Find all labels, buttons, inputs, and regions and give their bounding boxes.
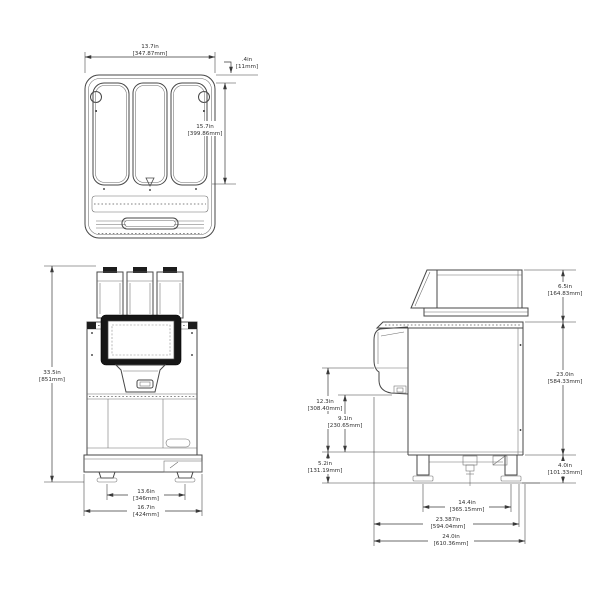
dim-top-width: 13.7in [347.87mm] — [85, 42, 215, 73]
dim-label-cup-clearance-mm: [230.65mm] — [328, 423, 363, 429]
dim-label-front-height-mm: [851mm] — [39, 377, 65, 383]
dim-label-body-height-mm: [584.33mm] — [548, 379, 583, 385]
dimension-drawing: 13.7in [347.87mm] .4in [11mm] 15.7in [39… — [0, 0, 600, 600]
dispense-funnel — [116, 365, 165, 392]
dim-label-leg-height-in: 4.0in — [558, 463, 572, 469]
dim-side-body-height: 23.0in [584.33mm] — [525, 322, 587, 455]
side-view: 6.5in [164.83mm] 23.0in [584.33mm] 4.0in… — [304, 270, 587, 547]
dim-label-top-width-mm: [347.87mm] — [133, 51, 168, 57]
dim-label-overall-depth-in: 24.0in — [442, 534, 460, 540]
dim-top-lid-offset: .4in [11mm] — [216, 57, 258, 83]
dim-label-foot-span-in: 13.6in — [137, 489, 155, 495]
dim-label-cup-clearance-in: 9.1in — [338, 416, 352, 422]
dim-label-front-width-mm: [424mm] — [133, 512, 159, 518]
dim-label-body-depth-in: 23.387in — [436, 517, 461, 523]
dim-label-lid-offset-mm: [11mm] — [236, 64, 258, 70]
front-base — [84, 455, 202, 482]
dim-label-body-depth-mm: [594.04mm] — [431, 524, 466, 530]
touchscreen — [101, 315, 181, 365]
dim-label-hopper-height-mm: [164.83mm] — [548, 291, 583, 297]
drawing-page: 13.7in [347.87mm] .4in [11mm] 15.7in [39… — [0, 0, 600, 600]
dim-label-base-clearance-in: 5.2in — [318, 461, 332, 467]
lower-vent-slot — [166, 439, 190, 447]
dim-label-front-height-in: 33.5in — [43, 370, 61, 376]
dim-top-depth: 15.7in [399.86mm] — [186, 83, 236, 184]
dim-label-lid-offset-in: .4in — [242, 57, 253, 63]
dim-side-leg-height: 4.0in [101.33mm] — [522, 455, 587, 483]
drain-fitting — [463, 456, 477, 465]
dim-side-body-depth: 23.387in [594.04mm] — [374, 397, 519, 546]
dim-label-dispense-clearance-in: 12.3in — [316, 399, 334, 405]
dim-label-leg-span-mm: [365.15mm] — [450, 507, 485, 513]
side-legs — [413, 455, 521, 486]
dim-front-foot-span: 13.6in [346mm] — [107, 484, 185, 502]
dim-label-top-depth-in: 15.7in — [196, 124, 214, 130]
dim-label-top-depth-mm: [399.86mm] — [188, 131, 223, 137]
dim-label-overall-depth-mm: [610.36mm] — [434, 541, 469, 547]
side-hopper — [411, 270, 528, 316]
dim-label-dispense-clearance-mm: [308.40mm] — [308, 406, 343, 412]
dim-label-body-height-in: 23.0in — [556, 372, 574, 378]
dim-label-hopper-height-in: 6.5in — [558, 284, 572, 290]
dim-side-dispense-clearance: 12.3in [308.40mm] — [304, 368, 408, 452]
dim-label-leg-span-in: 14.4in — [458, 500, 476, 506]
dim-side-leg-span: 14.4in [365.15mm] — [423, 484, 511, 513]
top-tray — [92, 196, 208, 212]
front-view: 33.5in [851mm] 13.6in [346mm] 16.7in [42… — [33, 266, 202, 518]
top-view: 13.7in [347.87mm] .4in [11mm] 15.7in [39… — [85, 42, 258, 238]
top-vents — [96, 218, 204, 234]
top-left-knob — [91, 92, 102, 103]
dim-side-hopper-height: 6.5in [164.83mm] — [524, 270, 587, 322]
dim-label-front-width-in: 16.7in — [137, 505, 155, 511]
side-dispense-head — [374, 327, 408, 394]
dim-label-foot-span-mm: [346mm] — [133, 496, 159, 502]
dim-label-base-clearance-mm: [131.19mm] — [308, 468, 343, 474]
dim-label-top-width-in: 13.7in — [141, 44, 159, 50]
dim-label-leg-height-mm: [101.33mm] — [548, 470, 583, 476]
top-right-knob — [199, 92, 210, 103]
side-body — [408, 328, 523, 455]
